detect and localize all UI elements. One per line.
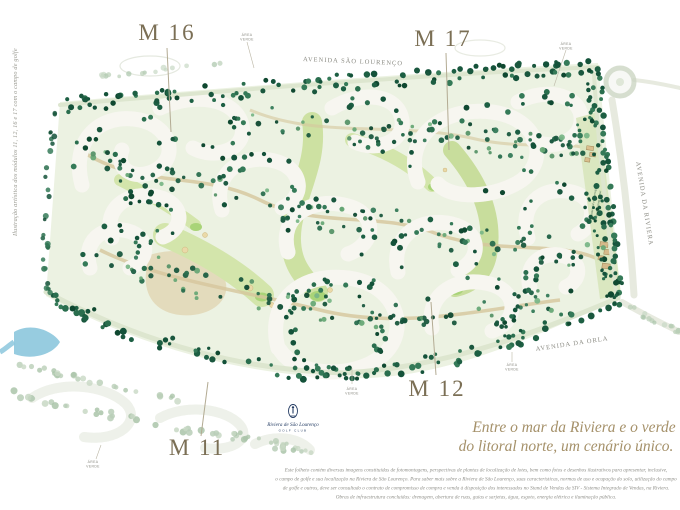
headline-line1: Entre o mar da Riviera e o verde [471, 419, 675, 436]
area-verde-label: ÁREA VERDE [559, 42, 573, 51]
area-verde-text: VERDE [345, 392, 359, 396]
disclaimer-line2: o campo de golfe e sua localização na Ri… [275, 476, 677, 483]
module-label-m11: M 11 [169, 435, 225, 460]
pond [14, 327, 60, 356]
area-verde-text: ÁREA [561, 42, 572, 46]
area-verde-leader [96, 445, 101, 459]
module-label-m12: M 12 [408, 376, 465, 401]
golf-club-crest-icon [289, 405, 298, 418]
headline-line2: do litoral norte, um cenário único. [459, 438, 674, 455]
disclaimer: Este folheto contém diversas imagens con… [275, 467, 677, 501]
roundabout-center [616, 78, 624, 86]
street-label-avenida-sao-lourenco: AVENIDA SÃO LOURENÇO [303, 55, 403, 67]
area-verde-label: ÁREA VERDE [86, 460, 100, 469]
brochure-page: Área comercial e de serviços futuro Shop… [0, 0, 680, 510]
area-verde-text: ÁREA [507, 363, 518, 367]
area-verde-text: ÁREA [88, 460, 99, 464]
area-verde-leader [247, 42, 254, 68]
water-inlet [0, 327, 60, 356]
module-label-m17: M 17 [414, 26, 471, 51]
street-label-avenida-da-orla: AVENIDA DA ORLA [535, 335, 609, 353]
disclaimer-line3: de golfe e outros, deve ser consultado o… [283, 485, 670, 492]
stream [0, 342, 14, 352]
module-label-m16: M 16 [138, 20, 195, 45]
area-verde-text: VERDE [505, 368, 519, 372]
street-label-avenida-da-riviera: AVENIDA DA RIVIERA [634, 161, 654, 246]
ghost-road [634, 80, 680, 88]
area-verde-label: ÁREA VERDE [240, 33, 254, 42]
disclaimer-line4: Obras de infraestrutura concluídas: dren… [336, 494, 616, 501]
logo-name: Riviera de São Lourenço [266, 422, 319, 428]
area-verde-label: ÁREA VERDE [505, 363, 519, 372]
area-verde-label: ÁREA VERDE [345, 387, 359, 396]
map-illustration: Área comercial e de serviços futuro Shop… [0, 0, 680, 510]
putting-green [190, 223, 202, 231]
area-verde-text: ÁREA [242, 33, 253, 37]
area-verde-text: VERDE [240, 38, 254, 42]
disclaimer-line1: Este folheto contém diversas imagens con… [284, 467, 668, 474]
logo-subtitle: GOLF CLUB [279, 429, 308, 433]
area-verde-text: VERDE [559, 47, 573, 51]
golf-club-logo: Riviera de São Lourenço GOLF CLUB [266, 405, 319, 433]
side-caption: Ilustração artística dos módulos 11, 12,… [12, 48, 19, 237]
area-verde-text: VERDE [86, 465, 100, 469]
area-verde-text: ÁREA [347, 387, 358, 391]
headline: Entre o mar da Riviera e o verde do lito… [459, 419, 676, 455]
